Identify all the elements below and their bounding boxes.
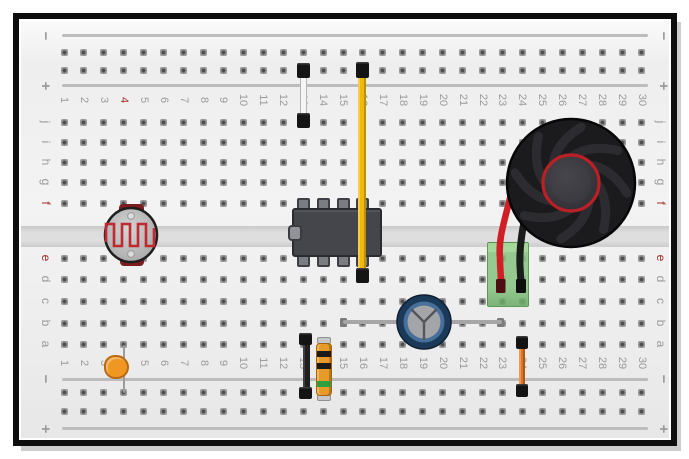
breadboard-hole <box>619 298 626 305</box>
breadboard-hole <box>200 119 207 126</box>
breadboard-hole <box>80 139 87 146</box>
breadboard-hole <box>100 276 107 283</box>
breadboard-hole <box>320 320 327 327</box>
resistor-band-3 <box>317 381 331 387</box>
breadboard-hole <box>280 389 287 396</box>
breadboard-hole <box>619 139 626 146</box>
breadboard-hole <box>399 341 406 348</box>
breadboard-hole <box>619 49 626 56</box>
breadboard-hole <box>200 159 207 166</box>
breadboard-hole <box>638 179 645 186</box>
column-number-label: 29 <box>612 90 632 110</box>
breadboard-hole <box>100 408 107 415</box>
breadboard-hole <box>80 276 87 283</box>
breadboard-hole <box>220 139 227 146</box>
breadboard-hole <box>61 276 68 283</box>
breadboard-hole <box>439 389 446 396</box>
breadboard-hole <box>220 341 227 348</box>
breadboard-hole <box>479 200 486 207</box>
breadboard-hole <box>280 67 287 74</box>
breadboard-hole <box>140 159 147 166</box>
column-number-label: 15 <box>333 90 353 110</box>
black-jumper-body <box>303 338 310 393</box>
breadboard-hole <box>180 200 187 207</box>
row-letter-label: h <box>36 152 56 172</box>
column-number-label: 20 <box>433 90 453 110</box>
breadboard-hole <box>100 179 107 186</box>
breadboard-hole <box>479 179 486 186</box>
breadboard-hole <box>399 119 406 126</box>
breadboard-hole <box>120 159 127 166</box>
column-number-label: 1 <box>54 353 74 373</box>
breadboard-hole <box>260 320 267 327</box>
column-number-label: 5 <box>134 90 154 110</box>
breadboard-hole <box>80 179 87 186</box>
breadboard-hole <box>499 139 506 146</box>
breadboard-hole <box>240 320 247 327</box>
breadboard-hole <box>280 200 287 207</box>
breadboard-hole <box>539 389 546 396</box>
breadboard-hole <box>499 159 506 166</box>
breadboard-hole <box>638 389 645 396</box>
breadboard-hole <box>200 408 207 415</box>
breadboard-hole <box>100 49 107 56</box>
breadboard-hole <box>638 67 645 74</box>
breadboard-hole <box>559 49 566 56</box>
breadboard-hole <box>638 159 645 166</box>
breadboard-hole <box>200 389 207 396</box>
breadboard-hole <box>638 49 645 56</box>
breadboard-hole <box>599 276 606 283</box>
column-number-label: 21 <box>453 353 473 373</box>
breadboard-hole <box>200 179 207 186</box>
breadboard-hole <box>140 320 147 327</box>
speaker-terminal-block <box>487 242 529 307</box>
row-letter-label: i <box>651 132 671 152</box>
breadboard-hole <box>499 200 506 207</box>
column-number-label: 22 <box>473 90 493 110</box>
row-letter-label: f <box>36 193 56 213</box>
breadboard-hole <box>61 179 68 186</box>
breadboard-hole <box>599 408 606 415</box>
breadboard-hole <box>439 179 446 186</box>
breadboard-hole <box>140 408 147 415</box>
wire-end-cap <box>297 113 310 128</box>
breadboard-hole <box>419 139 426 146</box>
breadboard-hole <box>240 179 247 186</box>
rail-plus-label: + <box>35 419 55 439</box>
row-letter-label: g <box>651 172 671 192</box>
column-number-label: 18 <box>393 353 413 373</box>
breadboard-hole <box>320 298 327 305</box>
breadboard-hole <box>100 200 107 207</box>
breadboard-hole <box>260 389 267 396</box>
breadboard-hole <box>359 408 366 415</box>
rail-minus-label: − <box>35 26 55 46</box>
breadboard-hole <box>579 389 586 396</box>
breadboard-hole <box>439 139 446 146</box>
breadboard-hole <box>260 139 267 146</box>
breadboard-hole <box>340 276 347 283</box>
breadboard-hole <box>399 408 406 415</box>
breadboard-hole <box>240 119 247 126</box>
breadboard-hole <box>340 320 347 327</box>
breadboard-hole <box>619 179 626 186</box>
breadboard-hole <box>240 408 247 415</box>
breadboard-hole <box>180 67 187 74</box>
breadboard-hole <box>459 179 466 186</box>
breadboard-hole <box>559 298 566 305</box>
column-number-label: 28 <box>592 90 612 110</box>
breadboard-hole <box>61 119 68 126</box>
breadboard-hole <box>80 298 87 305</box>
row-letter-label: i <box>36 132 56 152</box>
column-number-label: 8 <box>194 90 214 110</box>
breadboard-hole <box>61 159 68 166</box>
breadboard-hole <box>260 67 267 74</box>
breadboard-hole <box>479 389 486 396</box>
breadboard-hole <box>120 139 127 146</box>
breadboard-hole <box>579 119 586 126</box>
breadboard-hole <box>499 320 506 327</box>
breadboard-hole <box>479 298 486 305</box>
column-number-label: 6 <box>154 353 174 373</box>
breadboard-hole <box>619 200 626 207</box>
breadboard-hole <box>399 49 406 56</box>
breadboard-hole <box>320 49 327 56</box>
breadboard-hole <box>619 159 626 166</box>
breadboard-hole <box>439 320 446 327</box>
breadboard-hole <box>459 408 466 415</box>
breadboard-hole <box>459 255 466 262</box>
breadboard-hole <box>479 159 486 166</box>
top-negative-rail-line <box>62 34 648 37</box>
breadboard-hole <box>140 255 147 262</box>
column-number-label: 24 <box>512 90 532 110</box>
column-number-label: 26 <box>552 90 572 110</box>
breadboard-hole <box>539 276 546 283</box>
breadboard-hole <box>80 255 87 262</box>
breadboard-hole <box>100 320 107 327</box>
breadboard-hole <box>220 276 227 283</box>
breadboard-hole <box>439 341 446 348</box>
breadboard-hole <box>479 341 486 348</box>
breadboard-hole <box>539 159 546 166</box>
breadboard-hole <box>619 67 626 74</box>
column-number-label: 27 <box>572 90 592 110</box>
breadboard-hole <box>80 200 87 207</box>
breadboard-hole <box>599 389 606 396</box>
breadboard-hole <box>300 49 307 56</box>
breadboard-hole <box>379 298 386 305</box>
breadboard-hole <box>619 320 626 327</box>
breadboard-hole <box>638 320 645 327</box>
breadboard-hole <box>220 179 227 186</box>
breadboard-hole <box>120 179 127 186</box>
breadboard-hole <box>379 49 386 56</box>
breadboard-hole <box>80 67 87 74</box>
breadboard-hole <box>160 139 167 146</box>
column-number-label: 15 <box>333 353 353 373</box>
breadboard-hole <box>220 255 227 262</box>
breadboard-hole <box>459 139 466 146</box>
breadboard-hole <box>340 119 347 126</box>
breadboard-hole <box>399 179 406 186</box>
row-letter-label: h <box>651 152 671 172</box>
breadboard-hole <box>260 119 267 126</box>
breadboard-hole <box>519 49 526 56</box>
breadboard-hole <box>579 320 586 327</box>
rail-plus-label: + <box>653 76 673 96</box>
column-number-label: 11 <box>253 90 273 110</box>
breadboard-hole <box>439 49 446 56</box>
breadboard-hole <box>399 139 406 146</box>
breadboard-hole <box>260 408 267 415</box>
column-number-label: 9 <box>213 90 233 110</box>
orange-jumper-body <box>519 342 525 390</box>
breadboard-hole <box>320 159 327 166</box>
row-letter-label: c <box>651 291 671 311</box>
breadboard-hole <box>419 298 426 305</box>
breadboard-hole <box>260 298 267 305</box>
breadboard-hole <box>619 408 626 415</box>
breadboard-hole <box>61 298 68 305</box>
breadboard-hole <box>379 119 386 126</box>
breadboard-hole <box>320 119 327 126</box>
breadboard-hole <box>379 179 386 186</box>
breadboard-hole <box>180 298 187 305</box>
breadboard-hole <box>200 67 207 74</box>
breadboard-hole <box>419 389 426 396</box>
breadboard-hole <box>359 298 366 305</box>
breadboard-hole <box>399 200 406 207</box>
breadboard-hole <box>439 67 446 74</box>
breadboard-hole <box>619 119 626 126</box>
breadboard-hole <box>359 49 366 56</box>
breadboard-hole <box>180 341 187 348</box>
breadboard-hole <box>100 298 107 305</box>
breadboard-hole <box>80 341 87 348</box>
breadboard-hole <box>359 320 366 327</box>
breadboard-hole <box>320 276 327 283</box>
breadboard-hole <box>120 255 127 262</box>
breadboard-hole <box>200 320 207 327</box>
breadboard-hole <box>419 67 426 74</box>
breadboard-hole <box>180 179 187 186</box>
breadboard-hole <box>80 159 87 166</box>
breadboard-hole <box>559 320 566 327</box>
breadboard-hole <box>120 298 127 305</box>
breadboard-hole <box>160 49 167 56</box>
column-number-label: 11 <box>253 353 273 373</box>
breadboard-hole <box>499 49 506 56</box>
row-letter-label: d <box>651 269 671 289</box>
breadboard-hole <box>120 276 127 283</box>
breadboard-hole <box>559 408 566 415</box>
breadboard-hole <box>499 179 506 186</box>
breadboard-hole <box>80 389 87 396</box>
breadboard-hole <box>140 276 147 283</box>
wire-end-cap <box>516 336 528 349</box>
breadboard-hole <box>140 139 147 146</box>
breadboard-hole <box>340 408 347 415</box>
breadboard-hole <box>61 408 68 415</box>
breadboard-hole <box>539 67 546 74</box>
breadboard-hole <box>539 119 546 126</box>
breadboard-hole <box>80 408 87 415</box>
breadboard-hole <box>200 298 207 305</box>
breadboard-hole <box>519 67 526 74</box>
rail-minus-label: − <box>653 369 673 389</box>
breadboard-hole <box>559 276 566 283</box>
breadboard-hole <box>240 255 247 262</box>
breadboard-hole <box>80 49 87 56</box>
breadboard-hole <box>140 341 147 348</box>
breadboard-hole <box>100 119 107 126</box>
breadboard-hole <box>140 67 147 74</box>
breadboard-hole <box>459 389 466 396</box>
breadboard-hole <box>539 408 546 415</box>
breadboard-hole <box>559 139 566 146</box>
column-number-label: 23 <box>492 90 512 110</box>
breadboard-hole <box>638 255 645 262</box>
breadboard-hole <box>160 341 167 348</box>
breadboard-hole <box>419 179 426 186</box>
breadboard-hole <box>479 119 486 126</box>
breadboard-hole <box>419 49 426 56</box>
wire-end-cap <box>356 62 369 78</box>
breadboard-hole <box>579 67 586 74</box>
breadboard-hole <box>579 276 586 283</box>
breadboard-hole <box>439 159 446 166</box>
column-number-label: 9 <box>213 353 233 373</box>
column-number-label: 22 <box>473 353 493 373</box>
breadboard-hole <box>439 119 446 126</box>
breadboard-hole <box>100 67 107 74</box>
breadboard-hole <box>359 341 366 348</box>
breadboard-hole <box>240 341 247 348</box>
column-number-label: 12 <box>273 90 293 110</box>
breadboard-hole <box>280 139 287 146</box>
breadboard-hole <box>638 276 645 283</box>
breadboard-hole <box>280 276 287 283</box>
column-number-label: 28 <box>592 353 612 373</box>
column-number-label: 30 <box>632 353 652 373</box>
breadboard-hole <box>539 179 546 186</box>
wire-end-cap <box>299 333 312 345</box>
wire-end-cap <box>299 387 312 399</box>
breadboard-hole <box>539 139 546 146</box>
breadboard-hole <box>240 200 247 207</box>
breadboard-hole <box>499 389 506 396</box>
breadboard-hole <box>280 119 287 126</box>
breadboard-hole <box>280 320 287 327</box>
row-letter-label: e <box>651 248 671 268</box>
breadboard-hole <box>260 341 267 348</box>
breadboard-hole <box>399 67 406 74</box>
column-number-label: 10 <box>233 353 253 373</box>
breadboard-hole <box>599 159 606 166</box>
column-number-label: 14 <box>313 90 333 110</box>
breadboard-hole <box>120 67 127 74</box>
breadboard-hole <box>120 119 127 126</box>
breadboard-hole <box>539 49 546 56</box>
column-number-label: 10 <box>233 90 253 110</box>
breadboard-hole <box>200 276 207 283</box>
breadboard-hole <box>539 320 546 327</box>
breadboard-hole <box>180 49 187 56</box>
breadboard-hole <box>479 255 486 262</box>
breadboard-hole <box>439 298 446 305</box>
breadboard-hole <box>539 255 546 262</box>
column-number-label: 30 <box>632 90 652 110</box>
breadboard-hole <box>220 320 227 327</box>
breadboard-hole <box>519 139 526 146</box>
column-number-label: 1 <box>54 90 74 110</box>
breadboard-hole <box>519 179 526 186</box>
breadboard-hole <box>539 341 546 348</box>
breadboard-hole <box>240 67 247 74</box>
breadboard-hole <box>320 179 327 186</box>
breadboard-hole <box>61 139 68 146</box>
rail-minus-label: − <box>35 369 55 389</box>
breadboard-hole <box>340 67 347 74</box>
column-number-label: 18 <box>393 90 413 110</box>
breadboard-hole <box>459 276 466 283</box>
breadboard-hole <box>439 276 446 283</box>
row-letter-label: c <box>36 291 56 311</box>
breadboard-hole <box>459 298 466 305</box>
breadboard-hole <box>519 119 526 126</box>
breadboard-hole <box>559 159 566 166</box>
breadboard-hole <box>340 49 347 56</box>
breadboard-hole <box>479 139 486 146</box>
column-number-label: 8 <box>194 353 214 373</box>
breadboard-hole <box>479 67 486 74</box>
breadboard-hole <box>340 139 347 146</box>
disc-capacitor-body <box>104 355 129 379</box>
breadboard-hole <box>459 200 466 207</box>
breadboard-hole <box>599 139 606 146</box>
breadboard-hole <box>260 159 267 166</box>
breadboard-hole <box>459 119 466 126</box>
breadboard-hole <box>340 179 347 186</box>
breadboard-hole <box>439 255 446 262</box>
breadboard-hole <box>599 67 606 74</box>
breadboard-hole <box>180 276 187 283</box>
column-number-label: 23 <box>492 353 512 373</box>
row-letter-label: e <box>36 248 56 268</box>
breadboard-hole <box>180 389 187 396</box>
breadboard-hole <box>559 200 566 207</box>
breadboard-hole <box>240 49 247 56</box>
breadboard-hole <box>340 341 347 348</box>
breadboard-hole <box>61 389 68 396</box>
breadboard-hole <box>399 298 406 305</box>
breadboard-hole <box>120 200 127 207</box>
breadboard-hole <box>379 389 386 396</box>
breadboard-hole <box>459 159 466 166</box>
breadboard-hole <box>300 276 307 283</box>
breadboard-hole <box>399 255 406 262</box>
breadboard-hole <box>140 49 147 56</box>
breadboard-hole <box>638 341 645 348</box>
breadboard-hole <box>160 320 167 327</box>
breadboard-hole <box>579 139 586 146</box>
rail-plus-label: + <box>653 419 673 439</box>
breadboard-hole <box>399 389 406 396</box>
column-number-label: 4 <box>114 90 134 110</box>
